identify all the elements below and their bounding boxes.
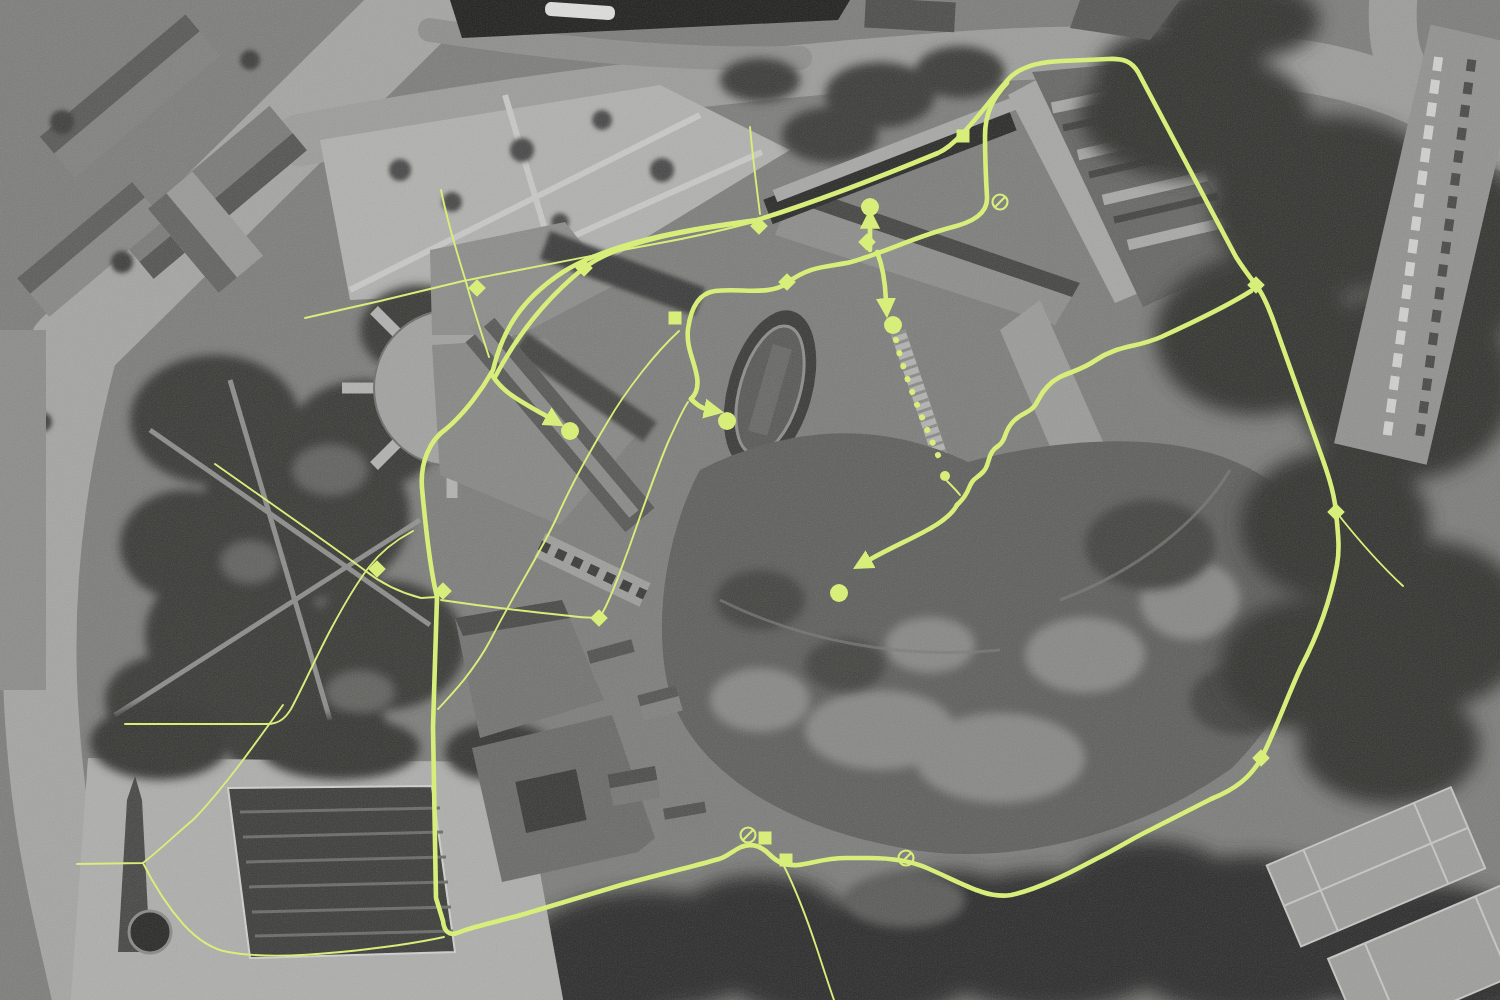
node-park-west[interactable] <box>468 279 486 297</box>
serpentine-descent-route <box>957 291 1251 505</box>
stop-barracks-west[interactable] <box>957 130 970 143</box>
stop-south-gate-west[interactable] <box>759 832 772 845</box>
south-exit-path <box>784 866 834 1000</box>
plaza-north-path <box>441 190 489 357</box>
main-loop-route <box>422 59 1339 934</box>
waypoint-dot-terrace[interactable] <box>718 412 736 430</box>
stop-south-gate[interactable] <box>780 854 793 867</box>
north-gate-path <box>750 127 760 214</box>
node-north-gate[interactable] <box>858 233 876 251</box>
park-diagonal-path <box>305 222 754 318</box>
no-entry-barracks-slash-icon <box>995 197 1005 207</box>
moat-diagonal-path <box>438 331 679 709</box>
stop-garden-terrace[interactable] <box>669 312 682 325</box>
no-entry-south-west-slash-icon <box>743 830 753 840</box>
arrow-to-hilltop-dot <box>869 505 957 560</box>
node-southeast-slope[interactable] <box>1252 749 1270 767</box>
waypoint-dot-gate-small[interactable] <box>940 471 950 481</box>
arrow-to-plaza-dot <box>492 375 548 417</box>
gate-link-path <box>947 481 960 495</box>
waypoint-dot-courtyard[interactable] <box>884 316 902 334</box>
stairs-dotted-path <box>896 340 941 462</box>
arrow-to-terrace-dot <box>691 399 706 409</box>
node-moat-south[interactable] <box>590 609 608 627</box>
west-cross-path <box>215 464 437 598</box>
arrow-to-courtyard-dot <box>877 252 886 300</box>
waypoint-dot-hilltop[interactable] <box>830 584 848 602</box>
plaza-south-path <box>143 863 444 955</box>
west-park-path <box>125 531 413 724</box>
east-exit-path <box>1337 513 1403 586</box>
southwest-link-path <box>77 705 283 864</box>
waypoint-dot-west-plaza[interactable] <box>561 422 579 440</box>
route-overlay <box>0 0 1500 1000</box>
map-canvas <box>0 0 1500 1000</box>
waypoint-dot-north-gate[interactable] <box>861 198 879 216</box>
